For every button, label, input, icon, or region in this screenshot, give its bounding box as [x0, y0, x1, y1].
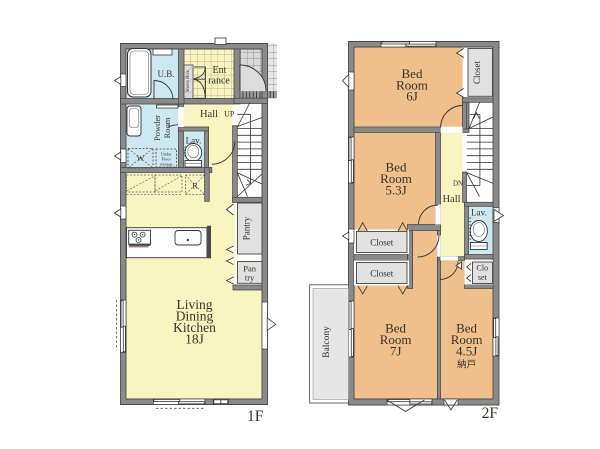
svg-text:Shoes Box: Shoes Box [185, 70, 191, 93]
svg-text:Closet: Closet [370, 269, 394, 279]
svg-text:Hall: Hall [442, 194, 460, 205]
svg-text:5.3J: 5.3J [385, 183, 406, 198]
svg-text:納戸: 納戸 [457, 359, 476, 371]
svg-text:Clo: Clo [477, 264, 489, 273]
svg-text:Balcony: Balcony [322, 326, 332, 358]
svg-text:R: R [192, 180, 198, 190]
svg-text:UP: UP [224, 110, 235, 119]
svg-text:1F: 1F [247, 408, 264, 425]
svg-text:Hall: Hall [200, 109, 218, 120]
svg-text:18J: 18J [185, 332, 204, 347]
svg-text:storage: storage [160, 162, 173, 167]
svg-text:Pantry: Pantry [242, 216, 252, 240]
svg-text:set: set [478, 273, 488, 282]
svg-text:rance: rance [208, 76, 230, 87]
svg-text:2F: 2F [482, 405, 499, 422]
svg-text:Closet: Closet [370, 238, 394, 248]
svg-text:Ent: Ent [213, 65, 227, 76]
svg-text:Lav.: Lav. [186, 136, 202, 146]
svg-text:U.B.: U.B. [157, 69, 174, 79]
svg-text:Closet: Closet [472, 61, 482, 85]
svg-text:W: W [137, 154, 145, 163]
svg-text:6J: 6J [406, 89, 418, 104]
svg-text:try: try [245, 273, 255, 283]
svg-text:Powder: Powder [152, 115, 162, 141]
svg-text:7J: 7J [390, 344, 402, 359]
svg-text:Lav.: Lav. [471, 208, 487, 218]
svg-text:Room: Room [162, 117, 172, 138]
svg-text:4.5J: 4.5J [456, 344, 477, 359]
svg-text:DN: DN [453, 180, 463, 188]
